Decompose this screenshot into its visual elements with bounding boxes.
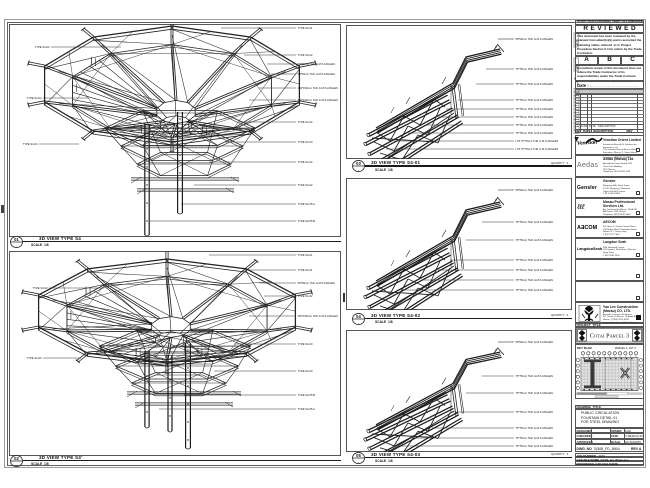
svg-text:TYPE S4-01: TYPE S4-01	[298, 253, 313, 257]
svg-text:75*75mm THK G.M.S ANGLES: 75*75mm THK G.M.S ANGLES	[516, 278, 554, 282]
svg-text:-: -	[358, 321, 359, 325]
svg-text:KEY PLAN: KEY PLAN	[577, 346, 592, 350]
svg-text:75*75mm THK G.M.S ANGLES: 75*75mm THK G.M.S ANGLES	[516, 444, 554, 448]
svg-text:TYPE S4-02: TYPE S4-02	[298, 183, 313, 187]
svg-text:75*75mm THK G.M.S ANGLES: 75*75mm THK G.M.S ANGLES	[516, 374, 554, 378]
svg-text:L75 75*75mm THK G.M.S ANGLES: L75 75*75mm THK G.M.S ANGLES	[516, 139, 559, 143]
svg-text:75*75mm THK G.M.S ANGLES: 75*75mm THK G.M.S ANGLES	[516, 131, 554, 135]
svg-text:75*75mm THK G.M.S ANGLES: 75*75mm THK G.M.S ANGLES	[516, 268, 554, 272]
svg-text:50*50mm THK G.M.S ANGLES: 50*50mm THK G.M.S ANGLES	[516, 188, 554, 192]
svg-text:TYPE S4-01: TYPE S4-01	[298, 26, 313, 30]
svg-text:TYPE S4-05 B: TYPE S4-05 B	[298, 393, 316, 397]
svg-text:02: 02	[14, 456, 19, 461]
svg-text:50*50mm THK G.M.S ANGLES: 50*50mm THK G.M.S ANGLES	[298, 281, 336, 285]
svg-text:TYPE S4-05 A: TYPE S4-05 A	[298, 202, 316, 206]
svg-text:L75 75*75mm THK G.M.S ANGLES: L75 75*75mm THK G.M.S ANGLES	[516, 147, 559, 151]
svg-text:TYPE S4-04: TYPE S4-04	[23, 142, 38, 146]
svg-text:75*75mm THK G.M.S ANGLES: 75*75mm THK G.M.S ANGLES	[516, 258, 554, 262]
svg-text:345: 345	[574, 65, 578, 70]
svg-text:75*75mm THK G.M.S ANGLES: 75*75mm THK G.M.S ANGLES	[516, 391, 554, 395]
svg-text:05: 05	[356, 453, 361, 458]
svg-text:TYPE S4-02: TYPE S4-02	[27, 96, 42, 100]
svg-text:75*75mm THK G.M.S ANGLES: 75*75mm THK G.M.S ANGLES	[516, 436, 554, 440]
svg-text:TYPE S4-02: TYPE S4-02	[298, 120, 313, 124]
svg-text:TYPE S4-03: TYPE S4-03	[298, 342, 313, 346]
svg-text:-: -	[16, 244, 17, 248]
svg-text:TYPE S4-02: TYPE S4-02	[298, 160, 313, 164]
svg-text:-: -	[358, 460, 359, 464]
svg-text:TYPE S4-02: TYPE S4-02	[33, 286, 48, 290]
svg-text:50*50mm THK G.M.S ANGLES: 50*50mm THK G.M.S ANGLES	[516, 340, 554, 344]
svg-text:3045: 3045	[574, 39, 578, 46]
svg-text:75*75mm THK G.M.S ANGLES: 75*75mm THK G.M.S ANGLES	[516, 238, 554, 242]
svg-text:50*50mm THK G.M.S ANGLES: 50*50mm THK G.M.S ANGLES	[516, 37, 554, 41]
svg-text:01: 01	[14, 237, 19, 242]
svg-text:75*75mm THK G.M.S ANGLES: 75*75mm THK G.M.S ANGLES	[516, 98, 554, 102]
svg-text:150*150mm THK G.M.S ANGLES: 150*150mm THK G.M.S ANGLES	[298, 314, 339, 318]
svg-text:75*75mm THK G.M.S ANGLES: 75*75mm THK G.M.S ANGLES	[516, 115, 554, 119]
svg-text:75*75mm THK G.M.S ANGLES: 75*75mm THK G.M.S ANGLES	[516, 67, 554, 71]
svg-text:TYPE S4-03: TYPE S4-03	[35, 45, 50, 49]
svg-text:COTAI PARCEL 3: COTAI PARCEL 3	[590, 333, 629, 340]
svg-text:TYPE S4-04: TYPE S4-04	[298, 369, 313, 373]
svg-text:-: -	[16, 463, 17, 467]
svg-text:75*75mm THK G.M.S ANGLES: 75*75mm THK G.M.S ANGLES	[516, 426, 554, 430]
svg-text:75*75mm THK G.M.S ANGLES: 75*75mm THK G.M.S ANGLES	[516, 220, 554, 224]
svg-text:150*150mm THK G.M.S ANGLES: 150*150mm THK G.M.S ANGLES	[298, 98, 339, 102]
svg-text:75*75mm THK G.M.S ANGLES: 75*75mm THK G.M.S ANGLES	[516, 410, 554, 414]
svg-text:75*75mm THK G.M.S ANGLES: 75*75mm THK G.M.S ANGLES	[516, 123, 554, 127]
svg-text:50*50mm THK G.M.S ANGLES: 50*50mm THK G.M.S ANGLES	[298, 72, 336, 76]
svg-text:TYPE S4-01: TYPE S4-01	[298, 268, 313, 272]
svg-text:TYPE S4-04: TYPE S4-04	[298, 140, 313, 144]
svg-text:150*150mm THK G.M.S ANGLES: 150*150mm THK G.M.S ANGLES	[298, 86, 339, 90]
svg-text:TYPE S4-05 B: TYPE S4-05 B	[298, 219, 316, 223]
svg-text:50*50mm THK G.M.S ANGLES: 50*50mm THK G.M.S ANGLES	[298, 62, 336, 66]
svg-text:TYPE S4-05 A: TYPE S4-05 A	[298, 407, 316, 411]
svg-text:-: -	[358, 168, 359, 172]
svg-text:75*75mm THK G.M.S ANGLES: 75*75mm THK G.M.S ANGLES	[516, 82, 554, 86]
svg-text:75*75mm THK G.M.S ANGLES: 75*75mm THK G.M.S ANGLES	[516, 288, 554, 292]
svg-text:TYPE S4-03: TYPE S4-03	[27, 356, 42, 360]
svg-text:TYPE S4-02: TYPE S4-02	[298, 53, 313, 57]
svg-text:TYPE S4-02: TYPE S4-02	[298, 294, 313, 298]
svg-text:75*75mm THK G.M.S ANGLES: 75*75mm THK G.M.S ANGLES	[516, 107, 554, 111]
svg-text:PARCEL 1, LOT 2: PARCEL 1, LOT 2	[615, 346, 636, 350]
svg-text:03: 03	[356, 161, 361, 166]
svg-text:04: 04	[356, 314, 361, 319]
